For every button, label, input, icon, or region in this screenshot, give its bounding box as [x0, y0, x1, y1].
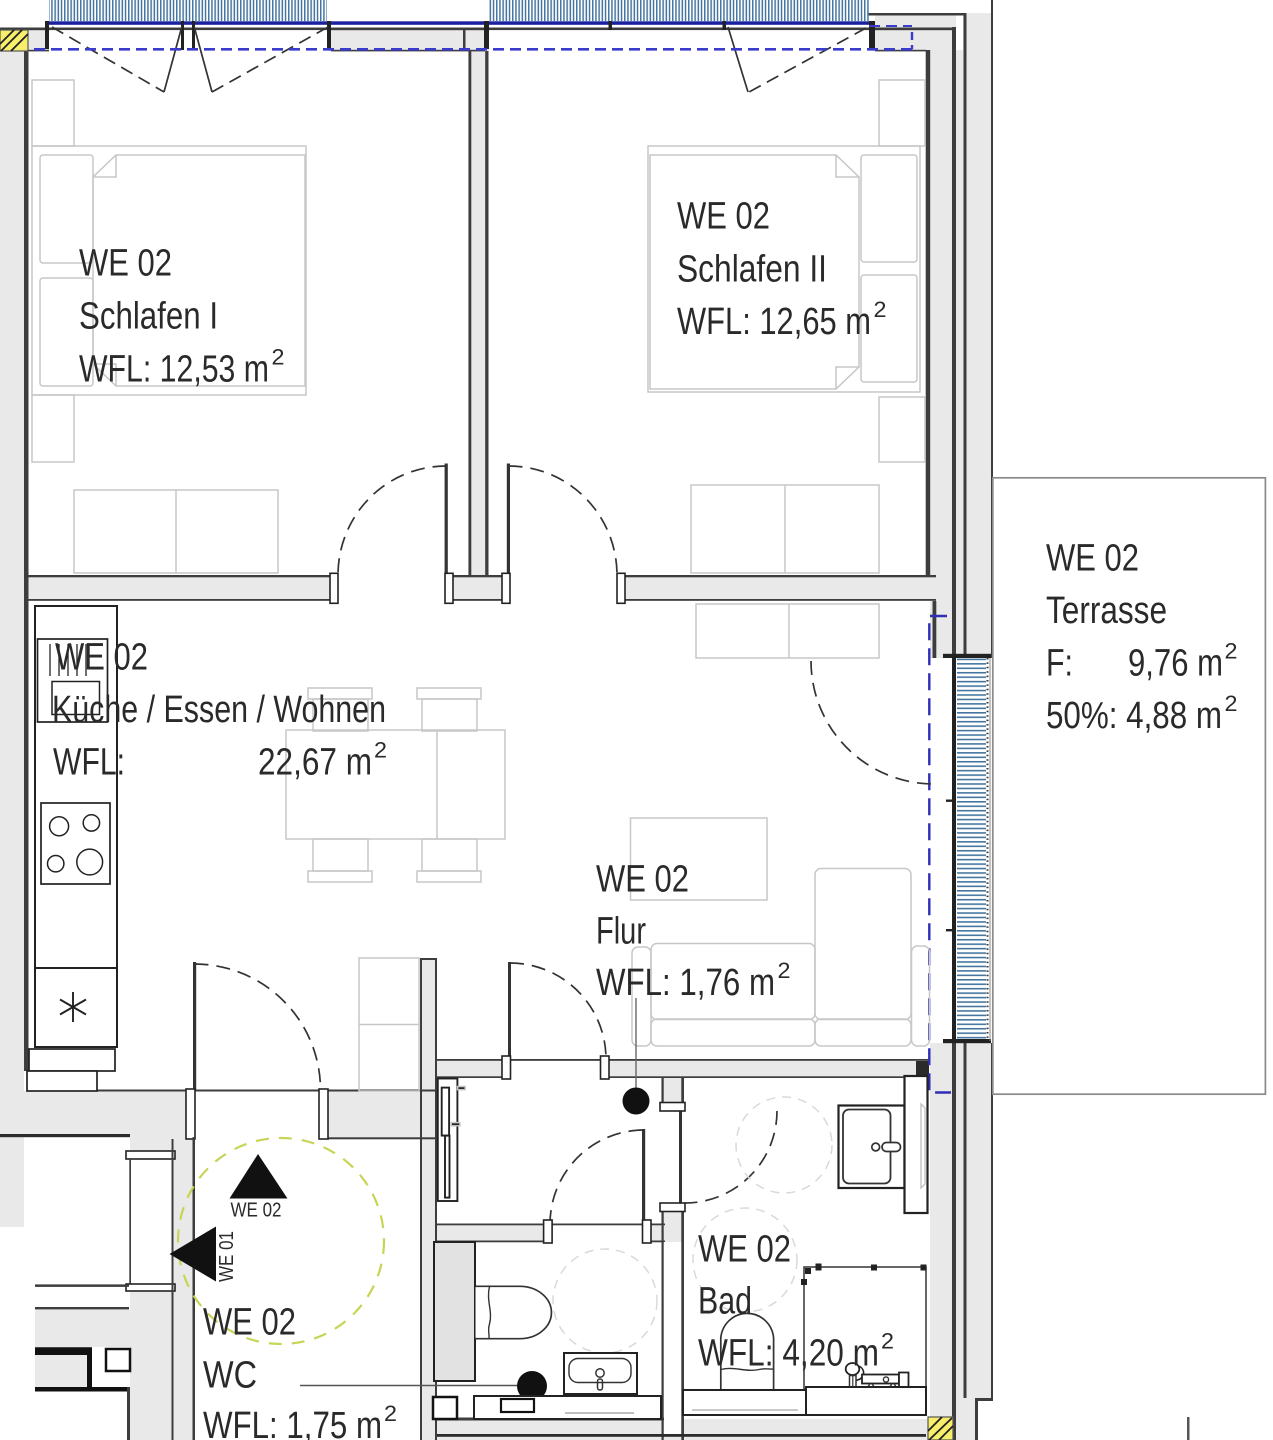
svg-text:2: 2 — [874, 297, 887, 322]
svg-text:WFL: 12,53 m: WFL: 12,53 m — [79, 349, 269, 391]
svg-text:2: 2 — [1225, 691, 1238, 716]
svg-text:WFL: 1,75 m: WFL: 1,75 m — [203, 1405, 382, 1440]
svg-text:Terrasse: Terrasse — [1046, 590, 1167, 632]
svg-text:WFL: 1,76 m: WFL: 1,76 m — [596, 962, 775, 1004]
svg-text:Schlafen I: Schlafen I — [79, 296, 218, 338]
svg-text:2: 2 — [778, 958, 791, 983]
svg-text:50%: 4,88 m: 50%: 4,88 m — [1046, 695, 1222, 737]
svg-text:WE 02: WE 02 — [231, 1200, 282, 1222]
svg-text:2: 2 — [881, 1329, 894, 1354]
svg-text:WE 01: WE 01 — [216, 1231, 238, 1282]
svg-text:WE 02: WE 02 — [79, 243, 172, 285]
svg-text:Flur: Flur — [596, 911, 646, 953]
svg-text:2: 2 — [272, 345, 285, 370]
svg-text:WFL: 4,20 m: WFL: 4,20 m — [698, 1333, 879, 1375]
svg-text:2: 2 — [1225, 639, 1238, 664]
svg-text:WFL: 12,65 m: WFL: 12,65 m — [677, 301, 871, 343]
svg-text:9,76 m: 9,76 m — [1128, 643, 1223, 685]
svg-text:WE 02: WE 02 — [677, 196, 770, 238]
svg-text:WE 02: WE 02 — [55, 637, 148, 679]
svg-text:WFL:: WFL: — [53, 742, 125, 784]
svg-text:WE 02: WE 02 — [1046, 538, 1139, 580]
svg-text:2: 2 — [374, 738, 387, 763]
svg-text:F:: F: — [1046, 643, 1073, 685]
svg-text:WE 02: WE 02 — [203, 1302, 296, 1344]
svg-text:Bad: Bad — [698, 1281, 752, 1323]
svg-text:2: 2 — [384, 1401, 397, 1426]
svg-text:WE 02: WE 02 — [596, 859, 689, 901]
svg-text:22,67 m: 22,67 m — [258, 742, 372, 784]
svg-text:WE 02: WE 02 — [698, 1229, 791, 1271]
svg-text:Schlafen II: Schlafen II — [677, 249, 827, 291]
svg-text:WC: WC — [203, 1355, 257, 1397]
svg-text:Küche / Essen / Wohnen: Küche / Essen / Wohnen — [52, 689, 386, 731]
